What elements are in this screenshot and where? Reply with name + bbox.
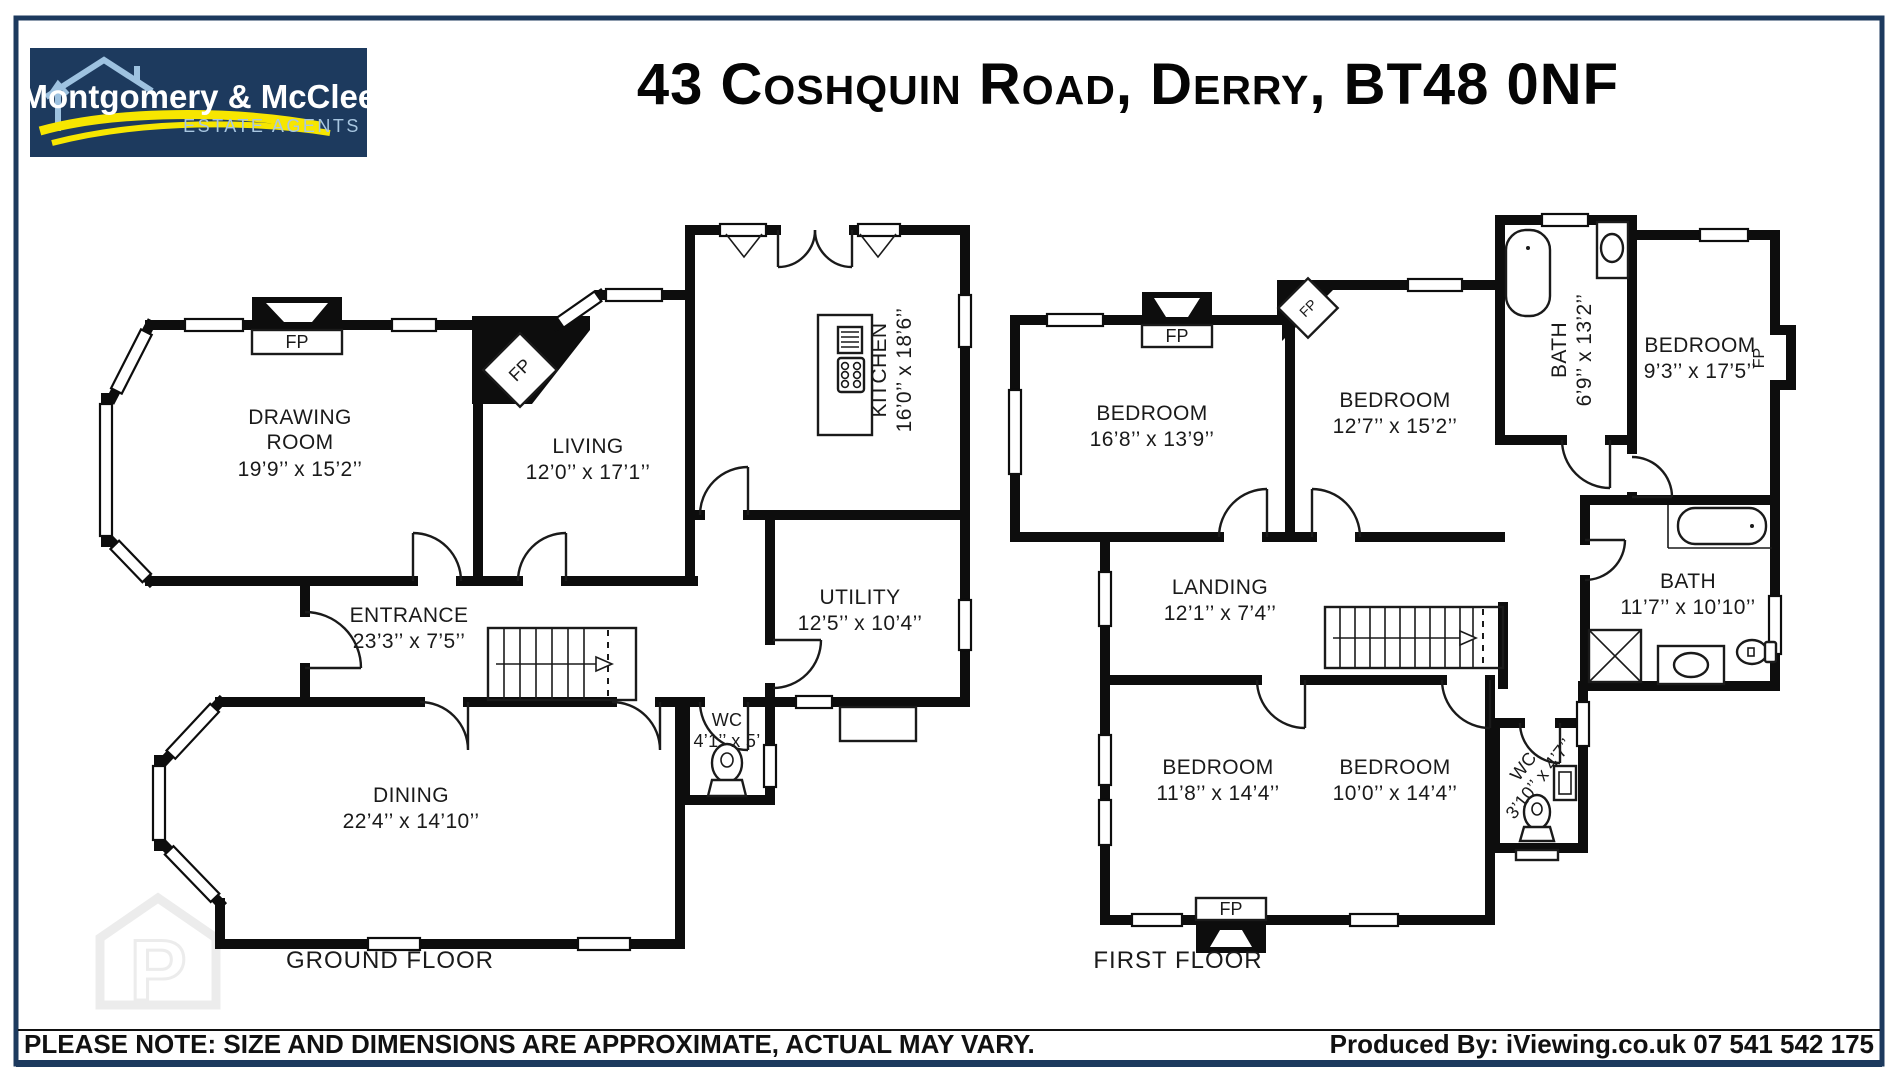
first-floor-label: FIRST FLOOR xyxy=(1093,947,1262,974)
room-dims: 23’3’’ x 7’5’’ xyxy=(353,630,466,653)
hob-icon xyxy=(838,358,864,392)
ground-floor-label: GROUND FLOOR xyxy=(286,947,494,974)
room-label: UTILITY xyxy=(820,586,901,609)
room-dims: 22’4’’ x 14’10’’ xyxy=(343,810,480,833)
sink-icon xyxy=(1597,222,1628,278)
room-label: BATH xyxy=(1660,570,1716,593)
room-label: DINING xyxy=(373,784,449,807)
ground-floor-plan: FP FP xyxy=(100,224,971,974)
room-dims: 12’7’’ x 15’2’’ xyxy=(1333,415,1458,438)
room-label: ROOM xyxy=(267,431,334,454)
room-label: KITCHEN xyxy=(868,323,891,418)
room-dims: 6’9’’ x 13’2’’ xyxy=(1573,294,1596,407)
footer-note: PLEASE NOTE: SIZE AND DIMENSIONS ARE APP… xyxy=(24,1029,1035,1059)
room-dims: 16’0’’ x 18’6’’ xyxy=(893,308,916,433)
room-dims: 9’3’’ x 17’5’’ xyxy=(1644,360,1757,383)
room-dims: 16’8’’ x 13’9’’ xyxy=(1090,428,1215,451)
bathtub-icon xyxy=(1506,230,1550,316)
room-label: ENTRANCE xyxy=(350,604,469,627)
bedroom4-fireplace: FP xyxy=(1196,898,1266,953)
floorplan-canvas: P Montgomery & McCleery ESTATE AGENTS 43… xyxy=(0,0,1898,1080)
first-room-labels: BEDROOM 16’8’’ x 13’9’’ BEDROOM 12’7’’ x… xyxy=(1090,294,1757,823)
room-label: BEDROOM xyxy=(1096,402,1207,425)
first-floor-plan: FP FP FP FP xyxy=(1009,214,1791,974)
shower-icon xyxy=(1589,630,1641,682)
room-dims: 12’5’’ x 10’4’’ xyxy=(798,612,923,635)
footer: PLEASE NOTE: SIZE AND DIMENSIONS ARE APP… xyxy=(18,1029,1880,1059)
room-label: BEDROOM xyxy=(1644,334,1755,357)
watermark-letter: P xyxy=(129,923,186,1019)
bathtub-icon xyxy=(1668,505,1772,548)
fireplace-label: FP xyxy=(1219,899,1242,919)
fireplace-label: FP xyxy=(285,332,308,352)
header: Montgomery & McCleery ESTATE AGENTS 43 C… xyxy=(21,48,1620,157)
logo-tagline: ESTATE AGENTS xyxy=(183,116,361,136)
room-dims: 19’9’’ x 15’2’’ xyxy=(238,458,363,481)
room-dims: 11’7’’ x 10’10’’ xyxy=(1620,596,1755,619)
room-label: BEDROOM xyxy=(1162,756,1273,779)
logo-name: Montgomery & McCleery xyxy=(21,78,409,115)
toilet-icon xyxy=(708,744,746,796)
toilet-icon xyxy=(1737,640,1776,664)
first-stairs xyxy=(1325,607,1503,668)
fireplace-label: FP xyxy=(1165,326,1188,346)
rear-step xyxy=(840,707,916,741)
watermark-logo: P xyxy=(100,898,216,1019)
kitchen-island xyxy=(818,315,872,435)
room-label: BEDROOM xyxy=(1339,389,1450,412)
room-label: BEDROOM xyxy=(1339,756,1450,779)
page-title: 43 Coshquin Road, Derry, BT48 0NF xyxy=(637,52,1619,117)
room-label: LIVING xyxy=(552,435,623,458)
room-label: DRAWING xyxy=(248,406,352,429)
bedroom1-fireplace: FP xyxy=(1142,292,1212,347)
room-dims: 12’1’’ x 7’4’’ xyxy=(1164,602,1277,625)
room-label: BATH xyxy=(1548,322,1571,378)
ground-stairs xyxy=(488,628,636,700)
room-label: LANDING xyxy=(1172,576,1268,599)
footer-produced-by: Produced By: iViewing.co.uk 07 541 542 1… xyxy=(1330,1029,1874,1059)
sink-icon xyxy=(1658,646,1724,684)
room-dims: 10’0’’ x 14’4’’ xyxy=(1333,782,1458,805)
floorplan-page: P Montgomery & McCleery ESTATE AGENTS 43… xyxy=(0,0,1898,1080)
room-dims: 4’1’’ x 5’ xyxy=(693,731,760,751)
bottom-border-band xyxy=(16,1060,1882,1067)
room-dims: 11’8’’ x 14’4’’ xyxy=(1156,782,1279,805)
room-dims: 12’0’’ x 17’1’’ xyxy=(526,461,651,484)
room-label: WC xyxy=(712,710,743,730)
wc-step xyxy=(1516,850,1558,860)
